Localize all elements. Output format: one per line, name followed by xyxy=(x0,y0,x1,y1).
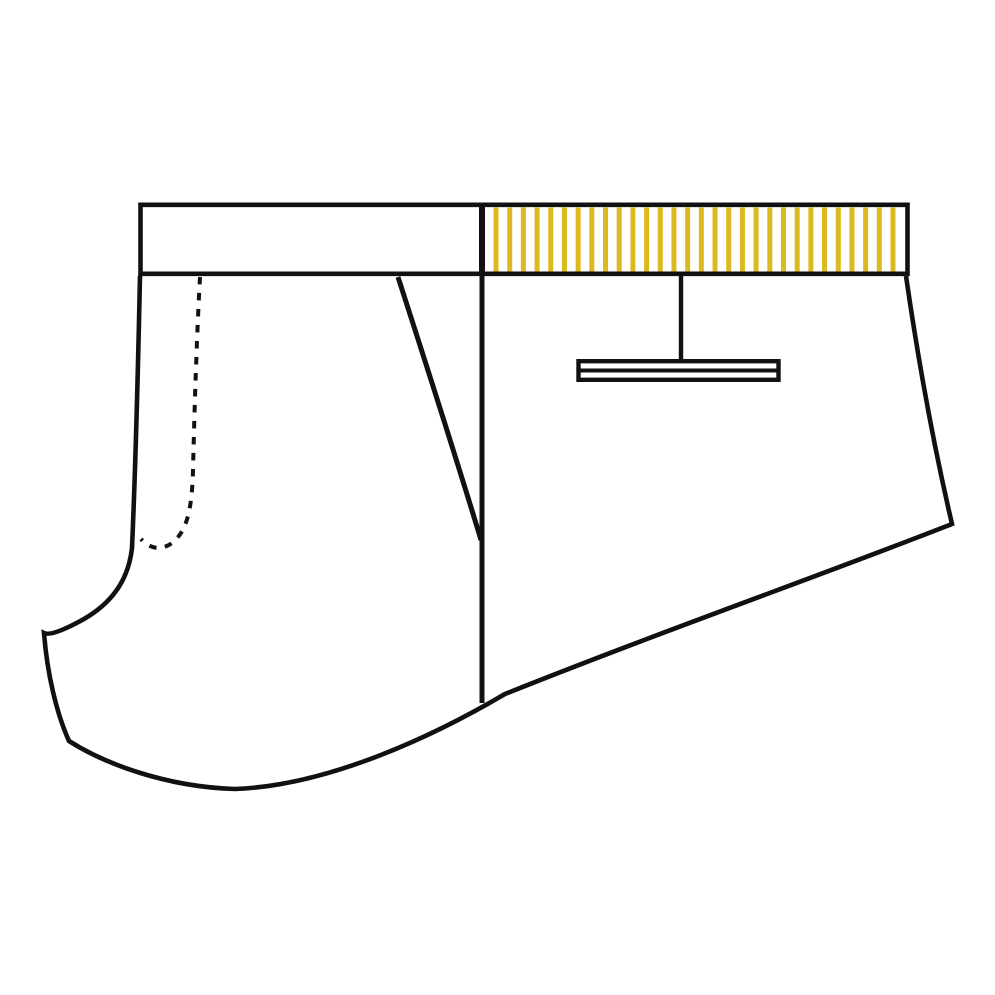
shorts-flat-sketch xyxy=(0,0,995,995)
waistband-stripes xyxy=(496,208,893,272)
front-pocket-dashed-seam xyxy=(141,277,200,548)
canvas xyxy=(0,0,995,995)
pocket-opening-seam xyxy=(398,277,481,540)
